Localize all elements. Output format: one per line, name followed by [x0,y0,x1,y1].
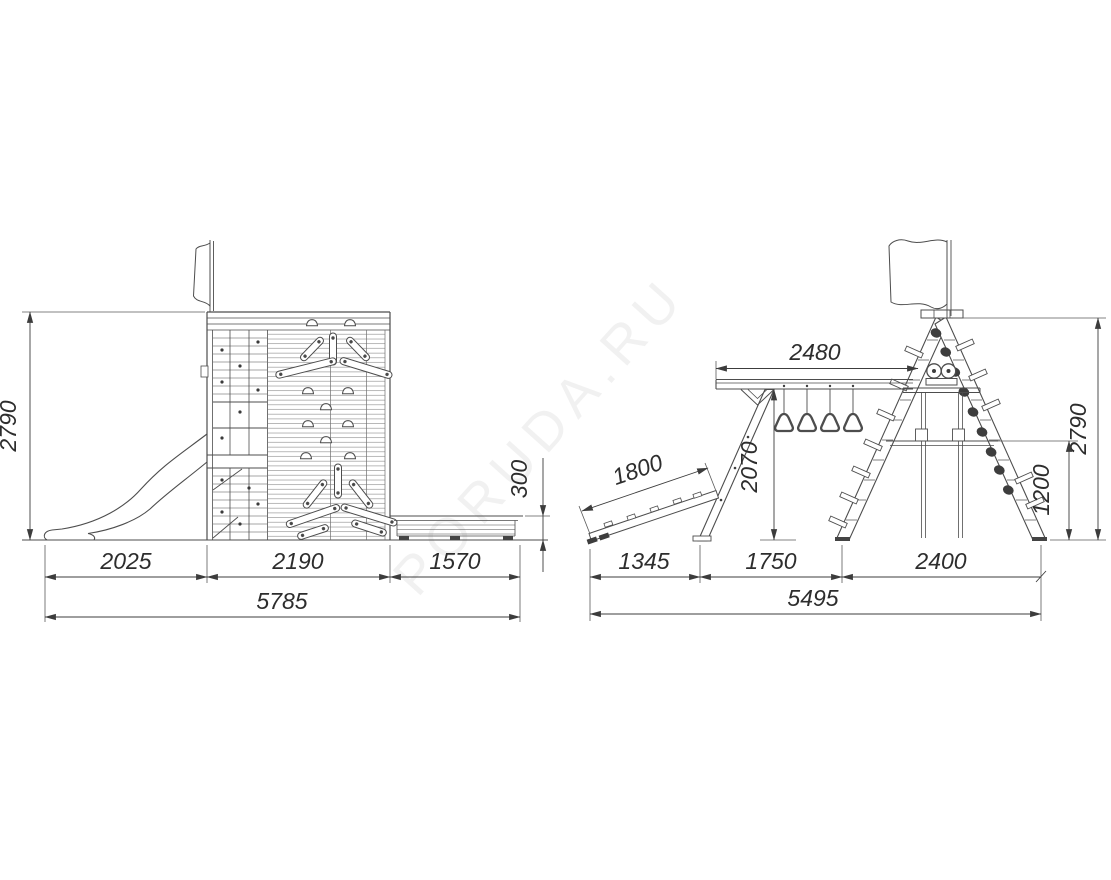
side-view: 2790 2025 2190 1570 5785 300 [0,240,550,622]
dim-bench-zone: 1570 [429,548,480,574]
pulley-swing [886,364,998,538]
dim-side-height: 2790 [0,400,21,452]
dim-ramp-zone: 1345 [618,548,669,574]
apex-cap [921,310,963,318]
ropes [922,393,963,539]
ladder-panel [207,330,268,540]
tower-flag [194,240,214,312]
front-view-dimensions: 2480 2790 1200 2070 1800 1345 175 [579,318,1106,621]
a-frame-flag [889,240,951,318]
technical-drawing: PORUDA.RU [0,0,1111,880]
slide [44,434,207,540]
flag-cloth [194,243,211,306]
left-leg-cleats [829,346,923,528]
dim-ramp-length: 1800 [609,449,666,490]
climbing-tower [201,312,398,540]
dim-beam-clearance: 2070 [736,441,762,493]
top-cap-beam [207,318,390,330]
dim-frame-base: 2400 [914,548,966,574]
gym-rings [775,389,862,431]
bolt-dots [220,340,259,525]
dim-crossbar-height: 1200 [1028,464,1054,515]
dim-side-total: 5785 [256,588,307,614]
dim-slide-zone: 2025 [99,548,151,574]
dim-support-zone: 1750 [745,548,796,574]
flag-cloth [889,240,947,309]
crossbar [886,441,998,446]
pulley-plate [926,379,957,386]
dim-front-total: 5495 [787,585,838,611]
dim-bench-height: 300 [506,460,532,499]
dim-tower-width: 2190 [271,548,323,574]
leg-feet [835,537,1047,541]
support-foot [693,536,711,541]
dim-beam-span: 2480 [788,339,840,365]
left-leg [836,317,947,540]
right-leg-climb-rocks [929,327,1015,497]
side-handle [201,366,208,377]
